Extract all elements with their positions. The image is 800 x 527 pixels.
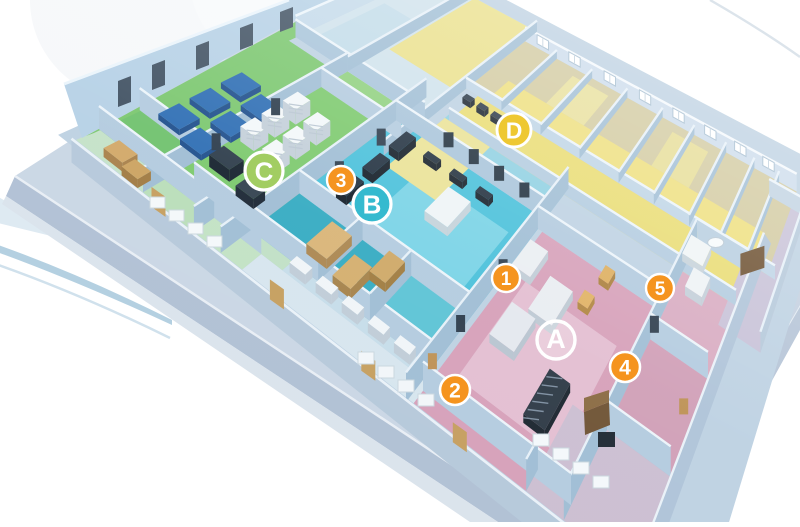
svg-text:5: 5 bbox=[655, 279, 666, 300]
svg-text:2: 2 bbox=[449, 380, 461, 403]
svg-text:D: D bbox=[506, 117, 523, 143]
svg-text:4: 4 bbox=[619, 357, 631, 380]
svg-text:C: C bbox=[255, 156, 274, 186]
svg-text:3: 3 bbox=[336, 171, 347, 192]
svg-text:1: 1 bbox=[501, 269, 512, 290]
svg-text:A: A bbox=[546, 324, 566, 354]
svg-text:B: B bbox=[363, 189, 382, 219]
